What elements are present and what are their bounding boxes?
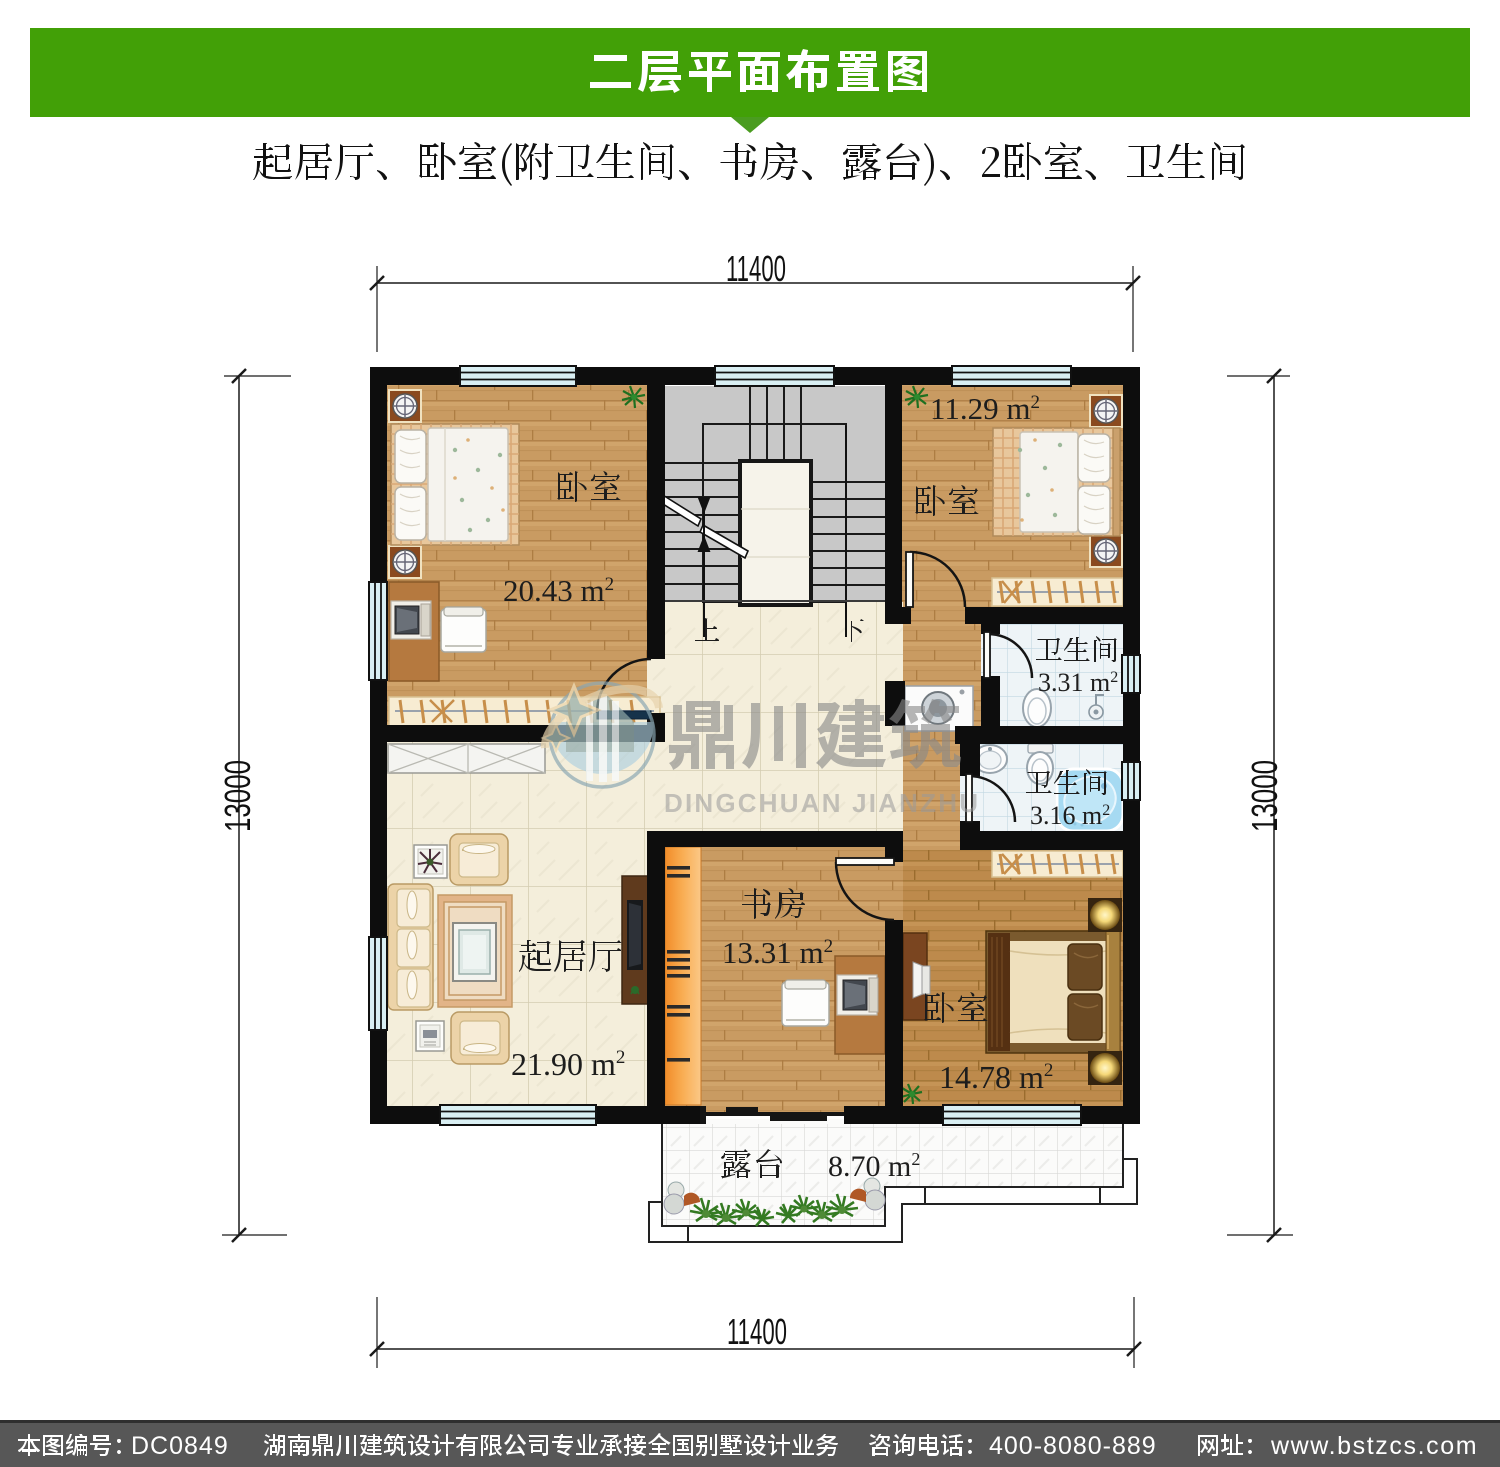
svg-text:13000: 13000	[217, 760, 258, 832]
svg-text:11.29 m2: 11.29 m2	[930, 391, 1040, 426]
svg-text:DC0849: DC0849	[131, 1432, 229, 1460]
svg-text:www.bstzcs.com: www.bstzcs.com	[1270, 1432, 1478, 1460]
svg-text:DINGCHUAN JIANZHU: DINGCHUAN JIANZHU	[664, 788, 980, 818]
svg-text:3.31 m2: 3.31 m2	[1038, 668, 1118, 697]
svg-text:11400: 11400	[727, 1311, 787, 1352]
svg-text:14.78 m2: 14.78 m2	[939, 1059, 1053, 1095]
svg-text:400-8080-889: 400-8080-889	[989, 1432, 1157, 1460]
svg-text:20.43 m2: 20.43 m2	[503, 573, 614, 608]
svg-text:21.90 m2: 21.90 m2	[511, 1046, 625, 1082]
svg-text:3.16 m2: 3.16 m2	[1030, 801, 1110, 830]
svg-text:11400: 11400	[726, 248, 786, 289]
svg-text:8.70 m2: 8.70 m2	[828, 1149, 920, 1183]
svg-text:13.31 m2: 13.31 m2	[722, 935, 833, 970]
svg-text:13000: 13000	[1244, 760, 1285, 832]
